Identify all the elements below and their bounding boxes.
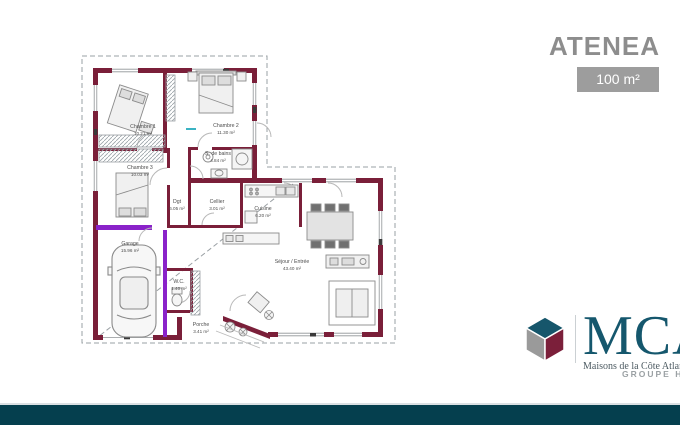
area-badge: 100 m² — [577, 67, 659, 92]
bed-icon-chambre3 — [116, 173, 148, 217]
room-area: 11.30 m² — [217, 130, 235, 135]
room-area: 15.96 m² — [121, 248, 140, 253]
room-area: 1.40 m² — [171, 286, 187, 291]
mca-cube-icon — [521, 313, 569, 365]
room-label: Cellier — [210, 199, 225, 205]
room-label: Chambre 2 — [213, 123, 239, 129]
brand-name: MCA — [583, 313, 680, 359]
dining-table-icon — [307, 204, 353, 248]
plan-sheet: Chambre 1 10.21 m² Chambre 2 11.30 m² Ch… — [0, 0, 680, 425]
brand-divider — [575, 315, 576, 363]
footer-bar — [0, 405, 680, 425]
room-label: Garage — [121, 241, 138, 247]
room-label: Chambre 3 — [127, 165, 153, 171]
dimension-marker — [186, 128, 196, 130]
room-area: 6.20 m² — [255, 213, 271, 218]
page-title: ATENEA — [540, 31, 660, 62]
floor-plan: Chambre 1 10.21 m² Chambre 2 11.30 m² Ch… — [80, 45, 400, 360]
bed-icon-chambre2 — [188, 71, 246, 113]
room-label: W.C. — [173, 279, 184, 285]
room-area: 3.01 m² — [209, 206, 225, 211]
plant-icon — [225, 311, 274, 337]
room-label: Cuisine — [254, 206, 271, 212]
room-area: 43.40 m² — [283, 266, 302, 271]
room-area: 4.84 m² — [210, 158, 226, 163]
room-label: Porche — [193, 322, 210, 328]
room-label: S. de bains — [205, 151, 231, 157]
room-label: Dgt — [173, 199, 182, 205]
tv-unit-icon — [326, 255, 369, 268]
porch-steps — [216, 325, 264, 348]
room-area: 6.05 m² — [169, 206, 185, 211]
armchair-icon — [248, 292, 269, 313]
room-area: 3.41 m² — [193, 329, 209, 334]
car-icon — [108, 245, 160, 337]
brand-group-name: GROUPE HEXAOM — [622, 369, 680, 379]
room-area: 10.21 m² — [134, 131, 153, 136]
room-label: Chambre 1 — [130, 124, 156, 130]
room-label: Séjour / Entrée — [275, 259, 310, 265]
brand-logo: MCA Maisons de la Côte Atlantique — [521, 313, 680, 372]
room-area: 10.03 m² — [131, 172, 150, 177]
sofa-icon — [329, 281, 375, 325]
